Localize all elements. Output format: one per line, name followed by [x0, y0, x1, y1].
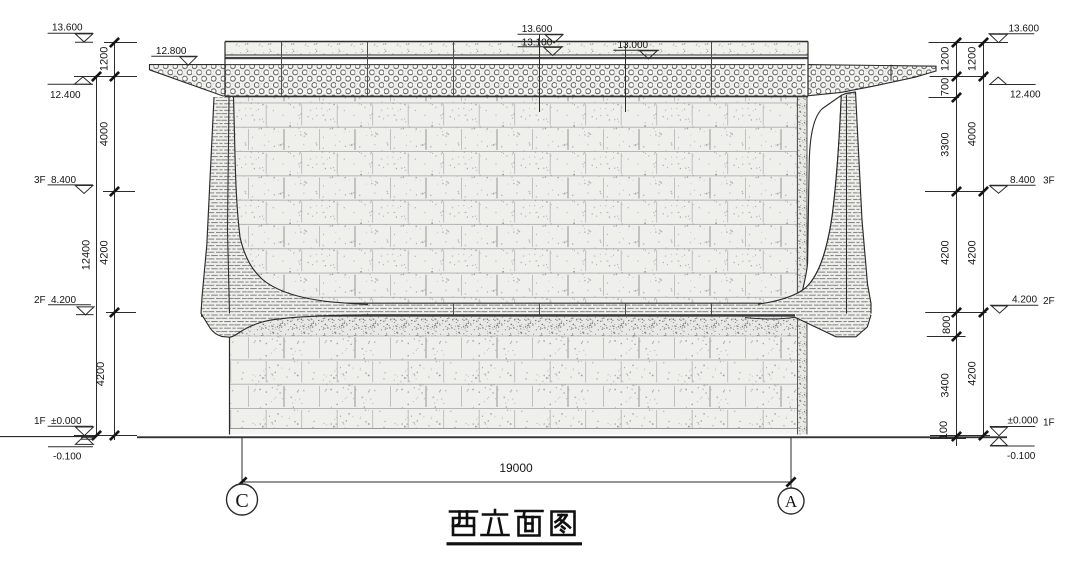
- svg-text:4000: 4000: [967, 122, 979, 146]
- svg-text:13.600: 13.600: [52, 23, 83, 34]
- svg-text:12.400: 12.400: [50, 90, 81, 101]
- svg-text:±0.000: ±0.000: [51, 416, 82, 427]
- svg-text:1F: 1F: [34, 416, 46, 427]
- svg-text:-0.100: -0.100: [53, 451, 82, 462]
- svg-text:13.600: 13.600: [522, 24, 553, 35]
- svg-text:12.400: 12.400: [1010, 90, 1041, 101]
- svg-text:19000: 19000: [499, 461, 533, 475]
- svg-text:13.000: 13.000: [618, 40, 649, 51]
- svg-text:4200: 4200: [940, 240, 952, 264]
- svg-text:±0.000: ±0.000: [1008, 415, 1039, 426]
- svg-text:100: 100: [938, 421, 950, 439]
- svg-text:4000: 4000: [99, 122, 111, 146]
- svg-text:1200: 1200: [99, 47, 111, 71]
- svg-text:C: C: [235, 490, 248, 512]
- svg-text:2F: 2F: [34, 295, 46, 306]
- svg-text:A: A: [785, 492, 798, 511]
- svg-text:800: 800: [941, 316, 953, 334]
- svg-text:1F: 1F: [1043, 417, 1055, 428]
- svg-text:1200: 1200: [940, 47, 952, 71]
- svg-text:8.400: 8.400: [51, 175, 76, 186]
- svg-text:4200: 4200: [95, 362, 107, 386]
- svg-text:8.400: 8.400: [1010, 175, 1035, 186]
- svg-text:3300: 3300: [940, 132, 952, 156]
- svg-text:4200: 4200: [99, 240, 111, 264]
- svg-text:700: 700: [940, 78, 952, 96]
- svg-text:13.600: 13.600: [1009, 24, 1040, 35]
- svg-text:12400: 12400: [81, 240, 93, 271]
- svg-text:12.800: 12.800: [156, 46, 187, 57]
- svg-text:4200: 4200: [967, 361, 979, 385]
- svg-text:4.200: 4.200: [51, 295, 76, 306]
- svg-text:2F: 2F: [1043, 296, 1055, 307]
- svg-text:1200: 1200: [967, 47, 979, 71]
- svg-text:3400: 3400: [940, 373, 952, 397]
- svg-text:3F: 3F: [34, 175, 46, 186]
- svg-text:4200: 4200: [967, 240, 979, 264]
- svg-text:3F: 3F: [1043, 175, 1055, 186]
- svg-text:-0.100: -0.100: [1007, 451, 1036, 462]
- svg-text:4.200: 4.200: [1012, 294, 1037, 305]
